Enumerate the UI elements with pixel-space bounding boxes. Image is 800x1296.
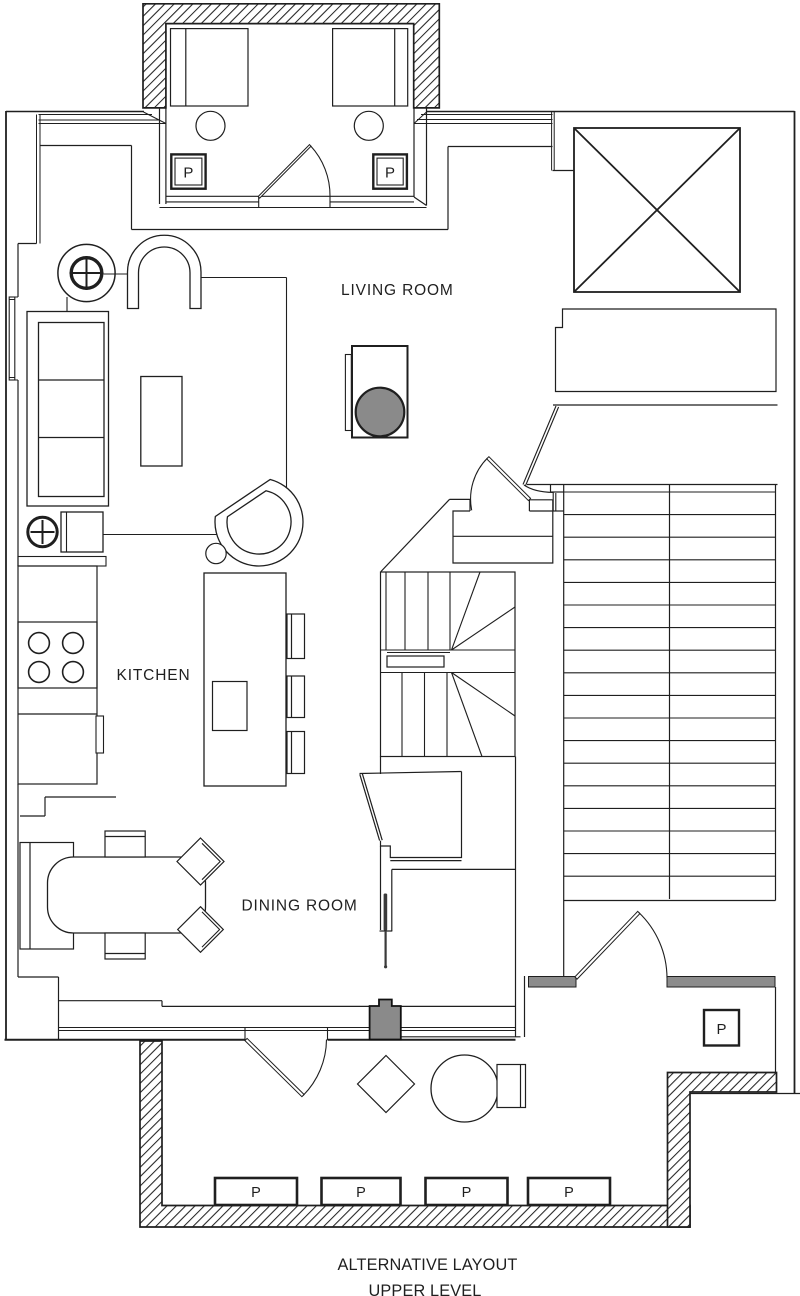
svg-text:P: P [716, 1021, 726, 1038]
svg-text:UPPER LEVEL: UPPER LEVEL [369, 1282, 482, 1296]
svg-text:DINING ROOM: DINING ROOM [242, 898, 358, 915]
svg-text:P: P [356, 1185, 366, 1201]
svg-text:P: P [251, 1185, 261, 1201]
svg-text:LIVING ROOM: LIVING ROOM [341, 282, 454, 299]
svg-text:KITCHEN: KITCHEN [117, 667, 191, 684]
svg-text:ALTERNATIVE LAYOUT: ALTERNATIVE LAYOUT [337, 1256, 517, 1274]
svg-text:P: P [183, 165, 193, 182]
svg-text:P: P [564, 1185, 574, 1201]
svg-text:P: P [385, 165, 395, 182]
svg-text:P: P [462, 1185, 472, 1201]
